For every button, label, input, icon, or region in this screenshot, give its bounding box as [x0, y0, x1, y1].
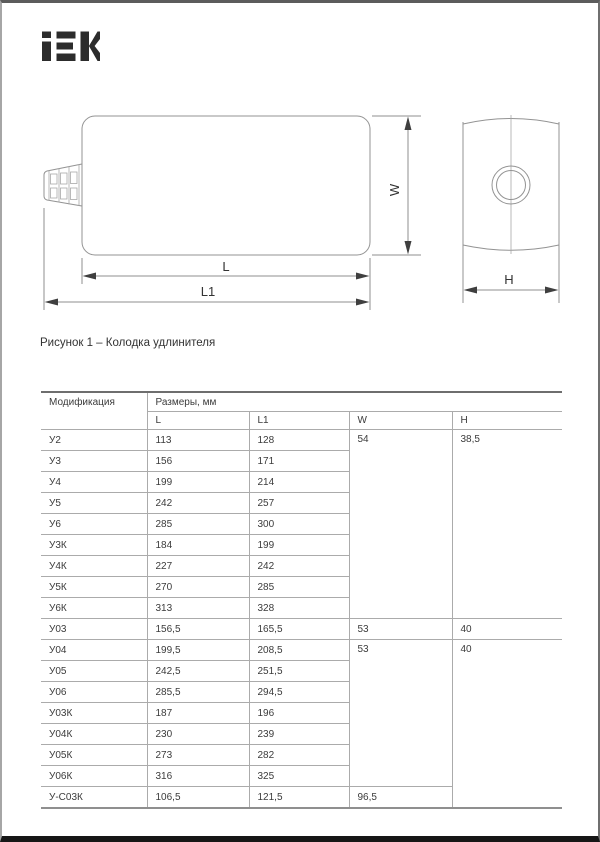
dim-label-l1: L1: [201, 284, 215, 299]
document-page: W L L1: [0, 0, 600, 842]
model-cell: У06: [41, 682, 147, 703]
model-cell: У05: [41, 661, 147, 682]
dimension-w: W: [372, 116, 421, 255]
model-cell: У3: [41, 451, 147, 472]
l-cell: 270: [147, 577, 249, 598]
model-cell: У-С03К: [41, 787, 147, 809]
figure-caption: Рисунок 1 – Колодка удлинителя: [40, 337, 215, 349]
dim-label-w: W: [387, 183, 402, 196]
l1-cell: 251,5: [249, 661, 349, 682]
col-header-modification: Модификация: [41, 392, 147, 430]
table-row: У2 113 128 54 38,5: [41, 430, 562, 451]
l-cell: 199,5: [147, 640, 249, 661]
l-cell: 285,5: [147, 682, 249, 703]
side-view: [463, 115, 559, 303]
h-cell: 40: [452, 640, 562, 809]
l1-cell: 214: [249, 472, 349, 493]
l1-cell: 239: [249, 724, 349, 745]
l1-cell: 325: [249, 766, 349, 787]
model-cell: У4: [41, 472, 147, 493]
col-header-dimensions-group: Размеры, мм: [147, 392, 562, 412]
l1-cell: 208,5: [249, 640, 349, 661]
col-header-l1: L1: [249, 412, 349, 430]
l-cell: 199: [147, 472, 249, 493]
l-cell: 242: [147, 493, 249, 514]
l-cell: 313: [147, 598, 249, 619]
l1-cell: 196: [249, 703, 349, 724]
l1-cell: 171: [249, 451, 349, 472]
l1-cell: 300: [249, 514, 349, 535]
l1-cell: 282: [249, 745, 349, 766]
model-cell: У3К: [41, 535, 147, 556]
l1-cell: 257: [249, 493, 349, 514]
model-cell: У6: [41, 514, 147, 535]
model-cell: У06К: [41, 766, 147, 787]
l-cell: 156,5: [147, 619, 249, 640]
plug-strain-relief: [44, 164, 82, 206]
l-cell: 187: [147, 703, 249, 724]
cord-outlet-inner-circle: [497, 171, 526, 200]
w-cell: 96,5: [349, 787, 452, 809]
h-cell: 38,5: [452, 430, 562, 619]
dim-label-l: L: [222, 259, 229, 274]
cord-outlet-outer-circle: [492, 166, 530, 204]
table-row: У03 156,5 165,5 53 40: [41, 619, 562, 640]
model-cell: У03К: [41, 703, 147, 724]
model-cell: У2: [41, 430, 147, 451]
l-cell: 156: [147, 451, 249, 472]
l-cell: 106,5: [147, 787, 249, 809]
l-cell: 230: [147, 724, 249, 745]
col-header-h: H: [452, 412, 562, 430]
table-row: У04 199,5 208,5 53 40: [41, 640, 562, 661]
l1-cell: 328: [249, 598, 349, 619]
l1-cell: 285: [249, 577, 349, 598]
dimension-l1: L1: [44, 208, 370, 310]
l1-cell: 199: [249, 535, 349, 556]
l1-cell: 294,5: [249, 682, 349, 703]
col-header-l: L: [147, 412, 249, 430]
model-cell: У04К: [41, 724, 147, 745]
l-cell: 227: [147, 556, 249, 577]
table-header-row-1: Модификация Размеры, мм: [41, 392, 562, 412]
l-cell: 184: [147, 535, 249, 556]
model-cell: У03: [41, 619, 147, 640]
l1-cell: 128: [249, 430, 349, 451]
col-header-w: W: [349, 412, 452, 430]
l1-cell: 121,5: [249, 787, 349, 809]
l1-cell: 165,5: [249, 619, 349, 640]
l-cell: 285: [147, 514, 249, 535]
l-cell: 273: [147, 745, 249, 766]
h-cell: 40: [452, 619, 562, 640]
l1-cell: 242: [249, 556, 349, 577]
dim-label-h: H: [504, 272, 513, 287]
model-cell: У5: [41, 493, 147, 514]
model-cell: У5К: [41, 577, 147, 598]
dimensions-table: Модификация Размеры, мм L L1 W H У2 113 …: [41, 391, 562, 809]
l-cell: 316: [147, 766, 249, 787]
model-cell: У4К: [41, 556, 147, 577]
w-cell: 53: [349, 619, 452, 640]
l-cell: 113: [147, 430, 249, 451]
dimension-l: L: [82, 258, 370, 310]
l-cell: 242,5: [147, 661, 249, 682]
model-cell: У6К: [41, 598, 147, 619]
w-cell: 53: [349, 640, 452, 787]
w-cell: 54: [349, 430, 452, 619]
model-cell: У05К: [41, 745, 147, 766]
iek-logo-icon: [42, 31, 100, 61]
front-view: [44, 116, 370, 255]
model-cell: У04: [41, 640, 147, 661]
dimension-h: H: [464, 272, 559, 294]
